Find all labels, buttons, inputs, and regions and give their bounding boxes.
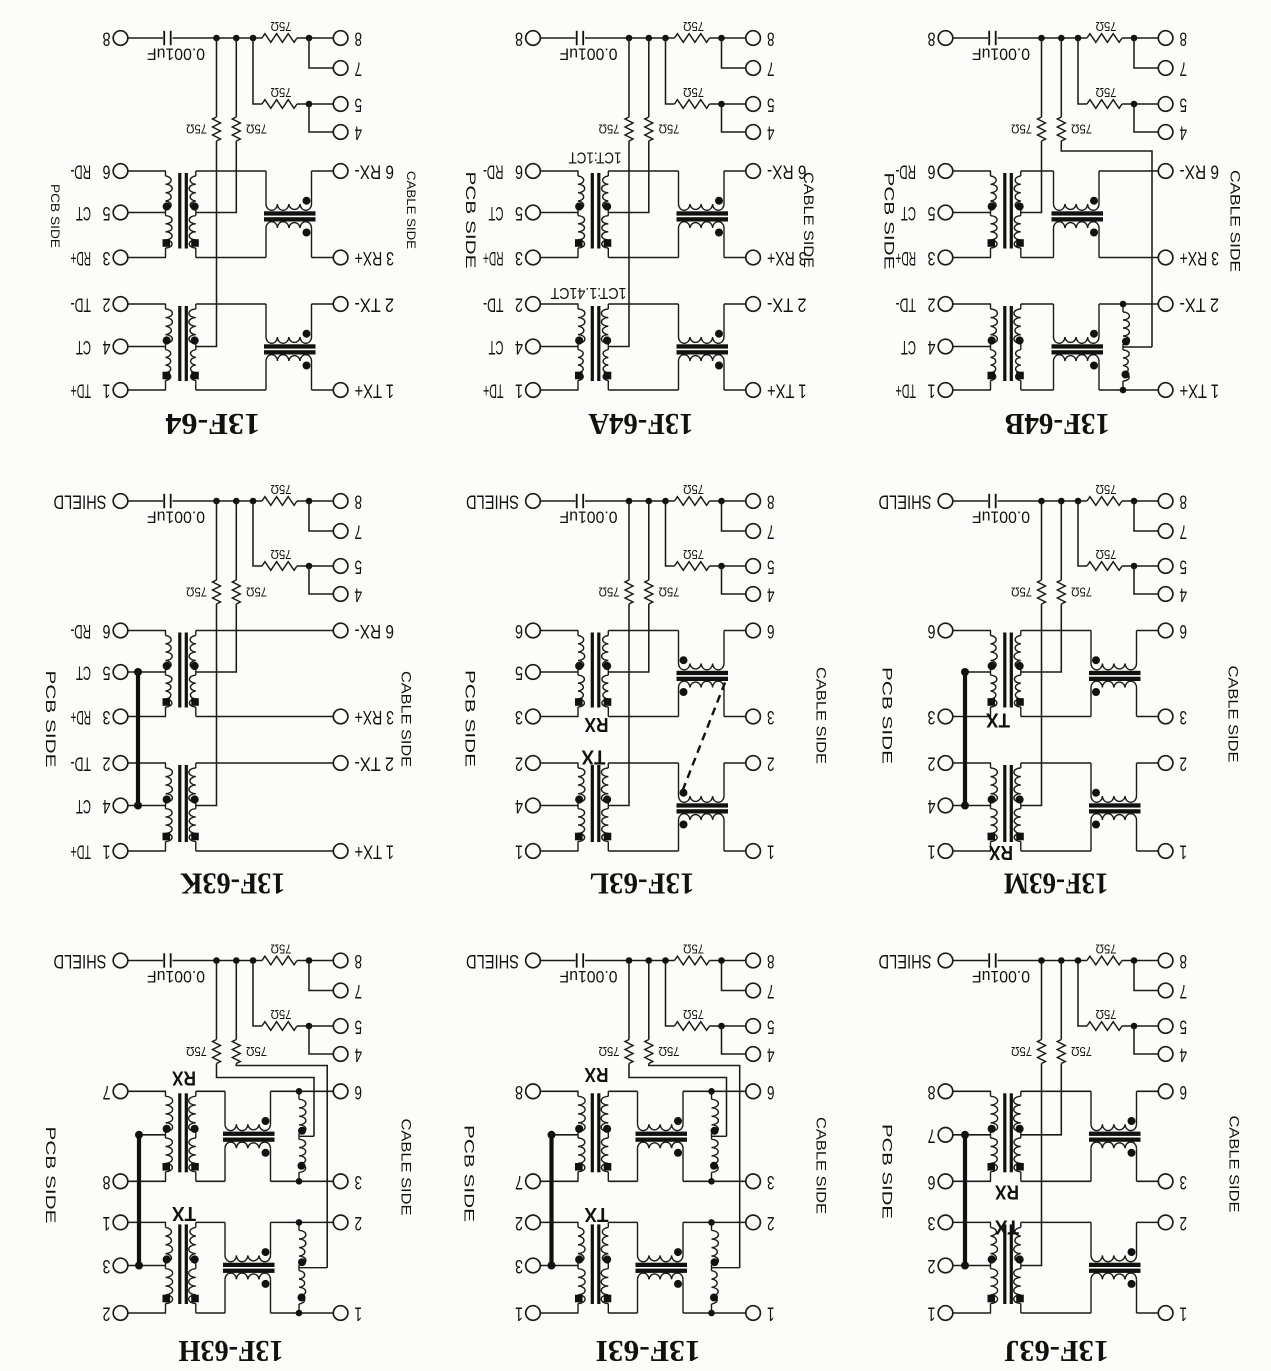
svg-text:0.001uF: 0.001uF [972, 45, 1030, 64]
svg-text:CT: CT [901, 336, 916, 357]
svg-text:8: 8 [355, 950, 363, 971]
svg-text:7: 7 [1180, 58, 1188, 79]
svg-text:1: 1 [928, 380, 936, 401]
svg-text:RX: RX [988, 841, 1013, 863]
svg-text:2: 2 [928, 1255, 936, 1276]
svg-text:CT: CT [488, 336, 503, 357]
svg-text:6: 6 [767, 620, 775, 641]
svg-text:0.001uF: 0.001uF [972, 967, 1030, 986]
svg-text:CABLE SIDE: CABLE SIDE [1228, 170, 1243, 272]
svg-text:75Ω: 75Ω [598, 585, 619, 600]
svg-text:75Ω: 75Ω [683, 547, 704, 562]
svg-text:0.001uF: 0.001uF [147, 45, 205, 64]
svg-text:2 TX-: 2 TX- [767, 294, 807, 315]
svg-text:6: 6 [767, 1081, 775, 1102]
svg-text:PCB SIDE: PCB SIDE [48, 184, 62, 248]
svg-text:1CT:1.41CT: 1CT:1.41CT [550, 284, 626, 301]
svg-text:CABLE SIDE: CABLE SIDE [814, 1117, 829, 1214]
svg-text:4: 4 [1179, 122, 1187, 143]
svg-text:4: 4 [102, 336, 110, 357]
svg-text:4: 4 [767, 1044, 775, 1065]
svg-text:7: 7 [355, 58, 363, 79]
svg-text:3: 3 [103, 706, 111, 727]
svg-text:75Ω: 75Ω [270, 482, 291, 497]
svg-text:PCB SIDE: PCB SIDE [880, 1124, 895, 1219]
svg-text:5: 5 [767, 1016, 775, 1037]
svg-text:RX: RX [584, 1063, 609, 1085]
svg-text:13F-63L: 13F-63L [590, 867, 695, 901]
svg-text:CT: CT [76, 662, 91, 683]
svg-text:TD+: TD+ [71, 841, 92, 862]
svg-text:8: 8 [928, 1081, 936, 1102]
svg-text:75Ω: 75Ω [186, 122, 207, 137]
svg-text:75Ω: 75Ω [186, 585, 207, 600]
svg-text:1 TX+: 1 TX+ [355, 841, 395, 862]
svg-text:6: 6 [928, 1171, 936, 1192]
svg-text:13F-63J: 13F-63J [1004, 1334, 1109, 1368]
svg-text:13F-64: 13F-64 [165, 407, 260, 441]
svg-text:RX: RX [994, 1180, 1019, 1202]
svg-text:RD+: RD+ [896, 247, 917, 268]
svg-text:75Ω: 75Ω [1095, 85, 1116, 100]
svg-text:2: 2 [1180, 1212, 1188, 1233]
svg-text:CABLE SIDE: CABLE SIDE [399, 671, 414, 767]
svg-text:3: 3 [1180, 1171, 1188, 1192]
svg-text:75Ω: 75Ω [683, 85, 704, 100]
svg-text:3: 3 [928, 706, 936, 727]
svg-text:1: 1 [355, 1303, 363, 1324]
svg-text:TX: TX [171, 1202, 196, 1224]
svg-text:7: 7 [767, 58, 775, 79]
svg-text:75Ω: 75Ω [683, 942, 704, 957]
svg-text:5: 5 [515, 662, 523, 683]
svg-text:1: 1 [103, 380, 111, 401]
svg-text:75Ω: 75Ω [598, 122, 619, 137]
svg-text:RD-: RD- [71, 161, 92, 182]
svg-text:3 RX+: 3 RX+ [355, 247, 395, 268]
svg-text:2: 2 [515, 753, 523, 774]
svg-text:TD+: TD+ [896, 380, 917, 401]
svg-text:8: 8 [1180, 491, 1188, 512]
svg-text:4: 4 [102, 795, 110, 816]
svg-text:RD+: RD+ [483, 247, 504, 268]
svg-text:CT: CT [901, 202, 916, 223]
svg-text:8: 8 [103, 28, 111, 49]
svg-text:1: 1 [767, 1303, 775, 1324]
svg-text:7: 7 [767, 521, 775, 542]
svg-text:1: 1 [103, 1212, 111, 1233]
svg-text:75Ω: 75Ω [1011, 122, 1032, 137]
svg-text:75Ω: 75Ω [270, 547, 291, 562]
svg-text:3: 3 [767, 1171, 775, 1192]
svg-text:75Ω: 75Ω [1071, 1044, 1092, 1059]
svg-text:1 TX+: 1 TX+ [1180, 380, 1220, 401]
svg-text:3 RX+: 3 RX+ [767, 247, 807, 268]
svg-text:4: 4 [515, 336, 523, 357]
svg-text:7: 7 [1180, 980, 1188, 1001]
svg-text:CT: CT [488, 202, 503, 223]
svg-text:5: 5 [928, 202, 936, 223]
svg-text:SHIELD: SHIELD [54, 491, 107, 512]
svg-text:RX: RX [584, 713, 609, 735]
svg-text:2: 2 [103, 294, 111, 315]
svg-text:RX: RX [171, 1067, 196, 1089]
svg-text:1: 1 [1180, 1303, 1188, 1324]
svg-text:TD+: TD+ [71, 380, 92, 401]
svg-text:5: 5 [515, 202, 523, 223]
svg-text:75Ω: 75Ω [1071, 122, 1092, 137]
svg-text:CABLE SIDE: CABLE SIDE [404, 171, 418, 249]
svg-text:4: 4 [354, 1044, 362, 1065]
svg-text:13F-63I: 13F-63I [596, 1334, 701, 1368]
svg-text:4: 4 [767, 122, 775, 143]
svg-text:1: 1 [928, 1303, 936, 1324]
svg-text:5: 5 [355, 556, 363, 577]
svg-text:75Ω: 75Ω [270, 1007, 291, 1022]
svg-text:6: 6 [515, 161, 523, 182]
svg-text:RD+: RD+ [71, 247, 92, 268]
svg-text:CABLE SIDE: CABLE SIDE [801, 172, 816, 268]
svg-text:RD+: RD+ [71, 706, 92, 727]
svg-text:0.001uF: 0.001uF [147, 508, 205, 527]
svg-text:4: 4 [767, 584, 775, 605]
svg-text:SHIELD: SHIELD [879, 491, 932, 512]
svg-text:1: 1 [767, 841, 775, 862]
svg-text:CABLE SIDE: CABLE SIDE [1227, 1116, 1242, 1213]
svg-text:13F-63M: 13F-63M [1004, 867, 1109, 901]
svg-text:CABLE SIDE: CABLE SIDE [814, 667, 829, 764]
svg-text:RD-: RD- [71, 620, 92, 641]
svg-text:75Ω: 75Ω [1011, 585, 1032, 600]
svg-text:75Ω: 75Ω [658, 122, 679, 137]
svg-text:75Ω: 75Ω [246, 1044, 267, 1059]
svg-text:PCB SIDE: PCB SIDE [43, 1127, 58, 1224]
svg-text:75Ω: 75Ω [246, 122, 267, 137]
svg-text:3: 3 [103, 247, 111, 268]
svg-text:8: 8 [767, 491, 775, 512]
svg-text:SHIELD: SHIELD [54, 950, 107, 971]
svg-text:2: 2 [1180, 753, 1188, 774]
svg-text:8: 8 [767, 950, 775, 971]
svg-text:1: 1 [515, 380, 523, 401]
svg-text:7: 7 [103, 1081, 111, 1102]
svg-text:75Ω: 75Ω [246, 585, 267, 600]
svg-text:75Ω: 75Ω [1095, 547, 1116, 562]
svg-text:5: 5 [355, 94, 363, 115]
svg-text:75Ω: 75Ω [658, 585, 679, 600]
svg-text:75Ω: 75Ω [683, 19, 704, 34]
svg-text:SHIELD: SHIELD [466, 491, 519, 512]
svg-text:6: 6 [928, 620, 936, 641]
svg-text:1: 1 [103, 841, 111, 862]
svg-text:6 RX-: 6 RX- [767, 161, 807, 182]
svg-text:8: 8 [103, 1171, 111, 1192]
svg-text:0.001uF: 0.001uF [147, 967, 205, 986]
svg-text:75Ω: 75Ω [1095, 942, 1116, 957]
svg-text:3: 3 [103, 1255, 111, 1276]
svg-text:3: 3 [515, 706, 523, 727]
svg-text:5: 5 [355, 1016, 363, 1037]
svg-text:7: 7 [515, 1171, 523, 1192]
svg-text:PCB SIDE: PCB SIDE [880, 667, 895, 764]
svg-text:0.001uF: 0.001uF [560, 45, 618, 64]
svg-text:2 TX-: 2 TX- [1180, 294, 1220, 315]
svg-text:8: 8 [355, 28, 363, 49]
svg-text:4: 4 [354, 122, 362, 143]
svg-text:4: 4 [927, 795, 935, 816]
svg-text:2 TX-: 2 TX- [355, 753, 395, 774]
svg-text:13F-63H: 13F-63H [178, 1334, 283, 1368]
svg-text:TD+: TD+ [483, 380, 504, 401]
svg-text:5: 5 [103, 662, 111, 683]
svg-text:5: 5 [1180, 556, 1188, 577]
svg-text:2: 2 [103, 753, 111, 774]
svg-text:2: 2 [515, 1212, 523, 1233]
svg-text:3 RX+: 3 RX+ [1180, 247, 1220, 268]
svg-text:8: 8 [767, 28, 775, 49]
svg-text:6: 6 [928, 161, 936, 182]
svg-text:7: 7 [355, 980, 363, 1001]
svg-text:6: 6 [355, 1081, 363, 1102]
svg-text:75Ω: 75Ω [1095, 482, 1116, 497]
svg-text:2: 2 [355, 1212, 363, 1233]
svg-text:CT: CT [76, 336, 91, 357]
svg-text:0.001uF: 0.001uF [560, 967, 618, 986]
svg-text:7: 7 [1180, 521, 1188, 542]
svg-text:75Ω: 75Ω [1011, 1044, 1032, 1059]
svg-text:TX: TX [581, 746, 606, 768]
svg-text:8: 8 [928, 28, 936, 49]
svg-text:6: 6 [515, 620, 523, 641]
svg-text:2: 2 [767, 1212, 775, 1233]
svg-text:PCB SIDE: PCB SIDE [462, 1125, 477, 1222]
svg-text:1: 1 [1180, 841, 1188, 862]
svg-text:PCB SIDE: PCB SIDE [463, 670, 478, 767]
svg-text:3: 3 [928, 247, 936, 268]
svg-text:8: 8 [355, 491, 363, 512]
svg-text:2: 2 [515, 294, 523, 315]
svg-text:75Ω: 75Ω [683, 482, 704, 497]
svg-text:TD-: TD- [71, 294, 92, 315]
svg-text:CABLE SIDE: CABLE SIDE [399, 1119, 414, 1216]
svg-text:CT: CT [76, 202, 91, 223]
svg-text:2: 2 [767, 753, 775, 774]
svg-text:4: 4 [1179, 1044, 1187, 1065]
svg-text:6 RX-: 6 RX- [1180, 161, 1220, 182]
svg-text:TD-: TD- [483, 294, 504, 315]
svg-text:7: 7 [355, 521, 363, 542]
svg-text:6 RX-: 6 RX- [355, 161, 395, 182]
svg-text:8: 8 [1180, 28, 1188, 49]
svg-text:75Ω: 75Ω [270, 19, 291, 34]
svg-text:8: 8 [515, 28, 523, 49]
svg-text:4: 4 [927, 336, 935, 357]
svg-text:3 RX+: 3 RX+ [355, 706, 395, 727]
svg-text:7: 7 [928, 1124, 936, 1145]
svg-text:75Ω: 75Ω [1071, 585, 1092, 600]
svg-text:75Ω: 75Ω [270, 85, 291, 100]
svg-text:8: 8 [1180, 950, 1188, 971]
svg-text:RD-: RD- [483, 161, 504, 182]
svg-text:TX: TX [985, 709, 1010, 731]
svg-text:PCB SIDE: PCB SIDE [43, 671, 58, 768]
svg-text:75Ω: 75Ω [1095, 19, 1116, 34]
svg-text:3: 3 [767, 706, 775, 727]
svg-text:TX: TX [994, 1215, 1019, 1237]
svg-text:2: 2 [103, 1303, 111, 1324]
svg-text:5: 5 [1180, 94, 1188, 115]
svg-text:8: 8 [515, 1081, 523, 1102]
svg-text:3: 3 [928, 1212, 936, 1233]
svg-text:TD-: TD- [71, 753, 92, 774]
svg-text:75Ω: 75Ω [1095, 1007, 1116, 1022]
svg-text:CABLE SIDE: CABLE SIDE [1226, 666, 1241, 763]
svg-text:TX: TX [584, 1203, 609, 1225]
svg-text:SHIELD: SHIELD [466, 950, 519, 971]
svg-text:5: 5 [767, 94, 775, 115]
svg-text:PCB SIDE: PCB SIDE [463, 172, 478, 269]
svg-text:TD-: TD- [896, 294, 917, 315]
svg-text:5: 5 [1180, 1016, 1188, 1037]
svg-text:1: 1 [928, 841, 936, 862]
svg-text:5: 5 [767, 556, 775, 577]
svg-text:2 TX-: 2 TX- [355, 294, 395, 315]
svg-text:1 TX+: 1 TX+ [355, 380, 395, 401]
svg-text:1: 1 [515, 841, 523, 862]
svg-text:RD-: RD- [896, 161, 917, 182]
svg-text:0.001uF: 0.001uF [560, 508, 618, 527]
svg-text:6 RX-: 6 RX- [355, 620, 395, 641]
svg-text:75Ω: 75Ω [270, 942, 291, 957]
svg-text:3: 3 [515, 1255, 523, 1276]
svg-text:7: 7 [767, 980, 775, 1001]
svg-text:3: 3 [355, 1171, 363, 1192]
svg-text:75Ω: 75Ω [683, 1007, 704, 1022]
svg-text:13F-64B: 13F-64B [1005, 407, 1110, 441]
svg-text:75Ω: 75Ω [186, 1044, 207, 1059]
svg-text:0.001uF: 0.001uF [972, 508, 1030, 527]
svg-text:75Ω: 75Ω [598, 1044, 619, 1059]
svg-text:4: 4 [1179, 584, 1187, 605]
svg-text:4: 4 [515, 795, 523, 816]
svg-text:6: 6 [1180, 1081, 1188, 1102]
svg-text:2: 2 [928, 753, 936, 774]
svg-text:13F-63K: 13F-63K [180, 867, 285, 901]
svg-text:75Ω: 75Ω [658, 1044, 679, 1059]
svg-text:6: 6 [1180, 620, 1188, 641]
svg-text:13F-64A: 13F-64A [588, 407, 693, 441]
svg-text:5: 5 [103, 202, 111, 223]
svg-text:CT: CT [76, 795, 91, 816]
svg-text:1CT:1CT: 1CT:1CT [568, 149, 621, 166]
svg-text:PCB SIDE: PCB SIDE [882, 173, 897, 270]
svg-text:6: 6 [103, 161, 111, 182]
svg-text:3: 3 [1180, 706, 1188, 727]
svg-text:3: 3 [515, 247, 523, 268]
svg-text:2: 2 [928, 294, 936, 315]
svg-text:6: 6 [103, 620, 111, 641]
svg-text:SHIELD: SHIELD [879, 950, 932, 971]
svg-text:1 TX+: 1 TX+ [767, 380, 807, 401]
svg-text:1: 1 [515, 1303, 523, 1324]
svg-text:4: 4 [354, 584, 362, 605]
